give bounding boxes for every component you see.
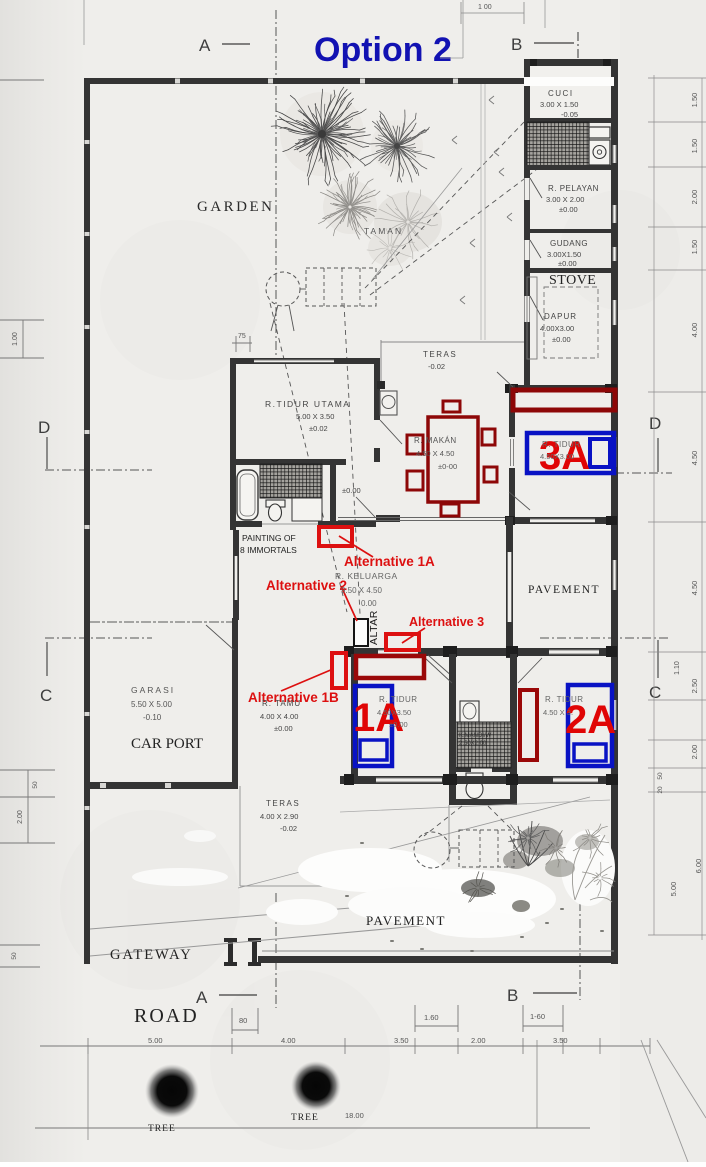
svg-text:CUCI: CUCI bbox=[548, 89, 574, 98]
svg-text:4.50 X 3.: 4.50 X 3. bbox=[543, 708, 573, 717]
svg-text:4.00 X 4.00: 4.00 X 4.00 bbox=[260, 712, 298, 721]
svg-text:4.00: 4.00 bbox=[281, 1036, 296, 1045]
svg-text:B: B bbox=[511, 35, 522, 54]
svg-text:1-60: 1-60 bbox=[530, 1012, 545, 1021]
svg-text:±0.00: ±0.00 bbox=[552, 335, 571, 344]
svg-text:K.MANDI/W: K.MANDI/W bbox=[459, 733, 492, 739]
svg-text:4.50: 4.50 bbox=[690, 451, 699, 466]
svg-text:75: 75 bbox=[238, 333, 246, 340]
svg-text:80: 80 bbox=[239, 1016, 247, 1025]
svg-text:4.50X3.00: 4.50X3.00 bbox=[540, 452, 574, 461]
svg-text:±0-00: ±0-00 bbox=[438, 462, 457, 471]
svg-text:8 IMMORTALS: 8 IMMORTALS bbox=[240, 545, 297, 555]
svg-text:2.00: 2.00 bbox=[690, 190, 699, 205]
svg-text:3.00 X 2.00: 3.00 X 2.00 bbox=[546, 195, 584, 204]
svg-text:GARDEN: GARDEN bbox=[197, 199, 275, 215]
svg-text:1.00: 1.00 bbox=[12, 332, 19, 346]
svg-text:1.10: 1.10 bbox=[674, 661, 681, 675]
svg-text:STOVE: STOVE bbox=[549, 273, 596, 288]
svg-text:5.00 X 3.50: 5.00 X 3.50 bbox=[296, 412, 334, 421]
svg-text:R. TIDUR: R. TIDUR bbox=[379, 695, 418, 704]
svg-text:D: D bbox=[649, 414, 661, 433]
svg-text:1 00: 1 00 bbox=[478, 4, 492, 11]
svg-text:1.50: 1.50 bbox=[690, 93, 699, 108]
svg-text:6.00: 6.00 bbox=[694, 859, 703, 874]
svg-text:PAVEMENT: PAVEMENT bbox=[366, 913, 446, 928]
svg-text:PAINTING OF: PAINTING OF bbox=[242, 533, 296, 543]
svg-text:ROAD: ROAD bbox=[134, 1005, 199, 1027]
svg-text:-0.02: -0.02 bbox=[280, 824, 297, 833]
svg-text:TAMAN: TAMAN bbox=[364, 226, 403, 236]
svg-text:CAR PORT: CAR PORT bbox=[131, 736, 203, 752]
svg-text:GATEWAY: GATEWAY bbox=[110, 947, 193, 963]
svg-text:ALTAR: ALTAR bbox=[368, 610, 380, 645]
svg-text:3.00 X 1.50: 3.00 X 1.50 bbox=[540, 100, 578, 109]
svg-text:3.00X1.50: 3.00X1.50 bbox=[547, 250, 581, 259]
svg-text:GUDANG: GUDANG bbox=[550, 239, 588, 248]
svg-text:D: D bbox=[38, 418, 50, 437]
svg-text:2.50X2.00: 2.50X2.00 bbox=[459, 741, 487, 747]
svg-text:C: C bbox=[649, 683, 661, 702]
svg-text:-0.02: -0.02 bbox=[428, 362, 445, 371]
svg-text:R. TIDUR: R. TIDUR bbox=[545, 695, 584, 704]
svg-text:±0.00: ±0.00 bbox=[559, 205, 578, 214]
svg-text:20: 20 bbox=[657, 786, 664, 794]
svg-text:R. KELUARGA: R. KELUARGA bbox=[335, 571, 398, 581]
svg-text:2.00: 2.00 bbox=[471, 1036, 486, 1045]
svg-text:3.50: 3.50 bbox=[553, 1036, 568, 1045]
svg-text:4.50: 4.50 bbox=[690, 581, 699, 596]
svg-text:-0.10: -0.10 bbox=[143, 713, 162, 722]
svg-text:5.00: 5.00 bbox=[148, 1036, 163, 1045]
svg-text:R. MAKÁN: R. MAKÁN bbox=[414, 436, 457, 445]
svg-text:-0.05: -0.05 bbox=[561, 110, 578, 119]
svg-text:R. PELAYAN: R. PELAYAN bbox=[548, 184, 599, 193]
svg-text:50: 50 bbox=[11, 952, 18, 960]
svg-text:0.00: 0.00 bbox=[361, 599, 377, 608]
svg-text:Alternative 3: Alternative 3 bbox=[409, 615, 484, 629]
svg-text:2.50: 2.50 bbox=[690, 679, 699, 694]
svg-text:9.50 X 4.50: 9.50 X 4.50 bbox=[341, 586, 382, 595]
svg-text:TREE: TREE bbox=[291, 1113, 319, 1123]
svg-text:±0.00: ±0.00 bbox=[342, 486, 361, 495]
svg-text:R. TIDUR: R. TIDUR bbox=[542, 440, 581, 449]
svg-text:A: A bbox=[196, 988, 208, 1007]
svg-text:4.00: 4.00 bbox=[690, 323, 699, 338]
svg-text:4.00X3.00: 4.00X3.00 bbox=[540, 324, 574, 333]
svg-text:5.00: 5.00 bbox=[669, 882, 678, 897]
svg-text:2.00: 2.00 bbox=[17, 810, 24, 824]
svg-text:5.50 X 5.00: 5.50 X 5.00 bbox=[131, 700, 172, 709]
svg-text:1.50: 1.50 bbox=[690, 240, 699, 255]
svg-text:B: B bbox=[507, 986, 518, 1005]
svg-text:3.50: 3.50 bbox=[394, 1036, 409, 1045]
svg-text:TERAS: TERAS bbox=[266, 799, 300, 808]
svg-text:A: A bbox=[199, 36, 211, 55]
svg-text:TERAS: TERAS bbox=[423, 350, 457, 359]
svg-text:1.60: 1.60 bbox=[424, 1013, 439, 1022]
svg-text:±0.00: ±0.00 bbox=[558, 259, 577, 268]
svg-text:±0.00: ±0.00 bbox=[274, 724, 293, 733]
svg-text:2A: 2A bbox=[565, 698, 616, 742]
svg-text:2.00: 2.00 bbox=[690, 745, 699, 760]
svg-text:C: C bbox=[40, 686, 52, 705]
svg-text:PAVEMENT: PAVEMENT bbox=[528, 584, 600, 596]
svg-text:4.50 X 4.50: 4.50 X 4.50 bbox=[416, 449, 454, 458]
svg-text:50: 50 bbox=[657, 772, 664, 780]
svg-text:GARASI: GARASI bbox=[131, 685, 175, 695]
svg-text:4.00 X 2.90: 4.00 X 2.90 bbox=[260, 812, 298, 821]
svg-text:1.50: 1.50 bbox=[690, 139, 699, 154]
svg-text:±0.00: ±0.00 bbox=[389, 720, 408, 729]
svg-text:50: 50 bbox=[32, 781, 39, 789]
svg-text:DAPUR: DAPUR bbox=[544, 312, 577, 321]
svg-text:±0.02: ±0.02 bbox=[309, 424, 328, 433]
svg-text:18.00: 18.00 bbox=[345, 1111, 364, 1120]
svg-text:R. TAMU: R. TAMU bbox=[262, 699, 301, 708]
svg-text:TREE: TREE bbox=[148, 1124, 176, 1134]
svg-text:Option 2: Option 2 bbox=[314, 31, 452, 69]
svg-text:R.TIDUR UTAMA: R.TIDUR UTAMA bbox=[265, 399, 350, 409]
svg-text:4.50X3.50: 4.50X3.50 bbox=[377, 708, 411, 717]
svg-text:Alternative 1A: Alternative 1A bbox=[344, 554, 435, 569]
